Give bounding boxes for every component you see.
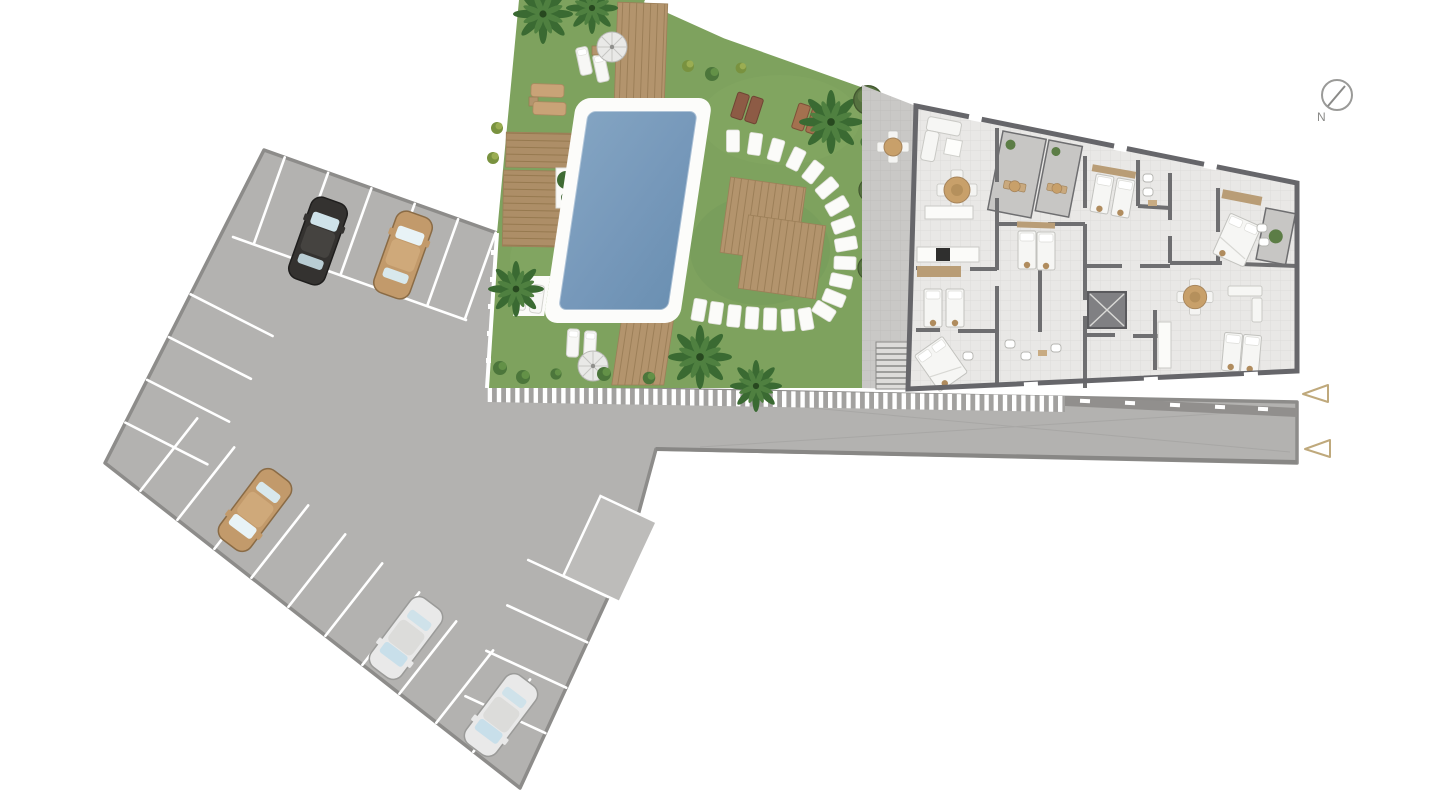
compass-needle bbox=[1328, 86, 1345, 106]
stove bbox=[936, 248, 950, 261]
kitchen-wood bbox=[917, 266, 961, 277]
stairs bbox=[876, 342, 908, 389]
entry-marker-top bbox=[1303, 385, 1328, 402]
entry-marker-bottom bbox=[1305, 440, 1330, 457]
bed bbox=[924, 289, 942, 327]
bed bbox=[1240, 334, 1261, 373]
north-compass: N bbox=[1317, 80, 1352, 124]
parasol bbox=[597, 32, 627, 62]
entry-markers bbox=[1303, 385, 1330, 457]
kitchen-counter bbox=[925, 206, 973, 219]
bath-mat bbox=[1148, 200, 1157, 206]
stair-shaft bbox=[1088, 292, 1126, 328]
pool-deck-bottom bbox=[612, 315, 674, 385]
sofa bbox=[1228, 286, 1262, 296]
wood-platform-2 bbox=[738, 215, 826, 299]
bath-mat bbox=[1038, 350, 1047, 356]
compass-north-label: N bbox=[1317, 110, 1326, 124]
site-plan-canvas: N bbox=[0, 0, 1440, 800]
kitchen-counter bbox=[1158, 322, 1171, 368]
bed bbox=[1018, 231, 1036, 269]
sofa bbox=[1252, 298, 1262, 322]
bed bbox=[1037, 232, 1055, 270]
sun-lounger bbox=[566, 329, 579, 358]
bed bbox=[946, 289, 964, 327]
site-plan-svg: N bbox=[0, 0, 1440, 800]
bed bbox=[1221, 332, 1242, 371]
apartment-building bbox=[908, 106, 1297, 392]
